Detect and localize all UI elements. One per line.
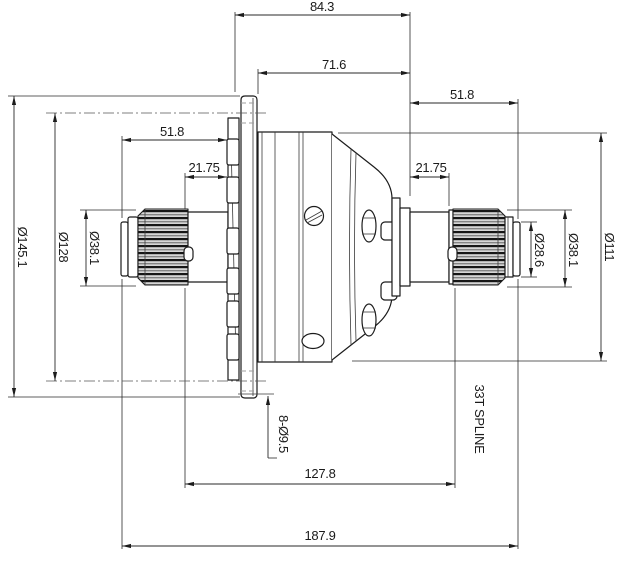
bolt-holes-label: 8-Ø9.5	[276, 415, 291, 453]
housing-outer	[258, 132, 332, 362]
dim-label: Ø28.6	[532, 233, 547, 267]
left-spline-stop-ring	[184, 247, 193, 261]
engineering-drawing-canvas: 84.3 71.6 51.8 51.8 21.75 21.75 127.8	[0, 0, 636, 587]
spline-note-label: 33T SPLINE	[472, 384, 487, 454]
dim-label: 187.9	[304, 528, 335, 543]
dim-label: Ø38.1	[87, 231, 102, 265]
flange-slot	[227, 334, 239, 360]
dim-label: 21.75	[415, 160, 446, 175]
right-shaft-end-washer	[513, 222, 520, 276]
hub-outer	[392, 198, 400, 296]
left-shaft-ring	[128, 217, 138, 277]
dim-label: 84.3	[310, 0, 334, 14]
flange-slot	[227, 301, 239, 327]
left-spline	[138, 209, 188, 285]
right-shaft-ring	[505, 217, 513, 277]
right-shaft-plain	[410, 212, 449, 282]
dim-label: Ø145.1	[15, 227, 30, 268]
dim-label: 127.8	[304, 466, 335, 481]
dim-label: 71.6	[322, 57, 346, 72]
dim-label: Ø38.1	[566, 233, 581, 267]
flange-slot	[227, 268, 239, 294]
left-journal	[188, 212, 228, 282]
right-shaft	[410, 209, 520, 285]
dim-label: Ø111	[602, 233, 617, 262]
housing-body	[258, 132, 332, 362]
dim-label: 51.8	[450, 87, 474, 102]
left-shaft-end-washer	[121, 222, 128, 276]
dim-label: 51.8	[160, 124, 184, 139]
dim-right-hub-length: 21.75	[410, 160, 449, 177]
flange-slot	[227, 228, 239, 254]
dim-label: 21.75	[188, 160, 219, 175]
left-shaft	[121, 209, 228, 285]
right-spline-stop-ring	[448, 247, 457, 261]
housing-oval-hole	[302, 334, 324, 349]
flange-slot	[227, 139, 239, 165]
hub-inner	[400, 208, 410, 286]
dim-label: Ø128	[56, 232, 71, 263]
right-spline	[453, 209, 505, 285]
differential-assembly-drawing: 84.3 71.6 51.8 51.8 21.75 21.75 127.8	[0, 0, 636, 587]
case-bolt-head	[362, 304, 376, 336]
flange-slot	[227, 177, 239, 203]
case-bolt-head	[362, 210, 376, 242]
flange-plate	[241, 96, 257, 398]
note-spline: 33T SPLINE	[472, 384, 487, 454]
